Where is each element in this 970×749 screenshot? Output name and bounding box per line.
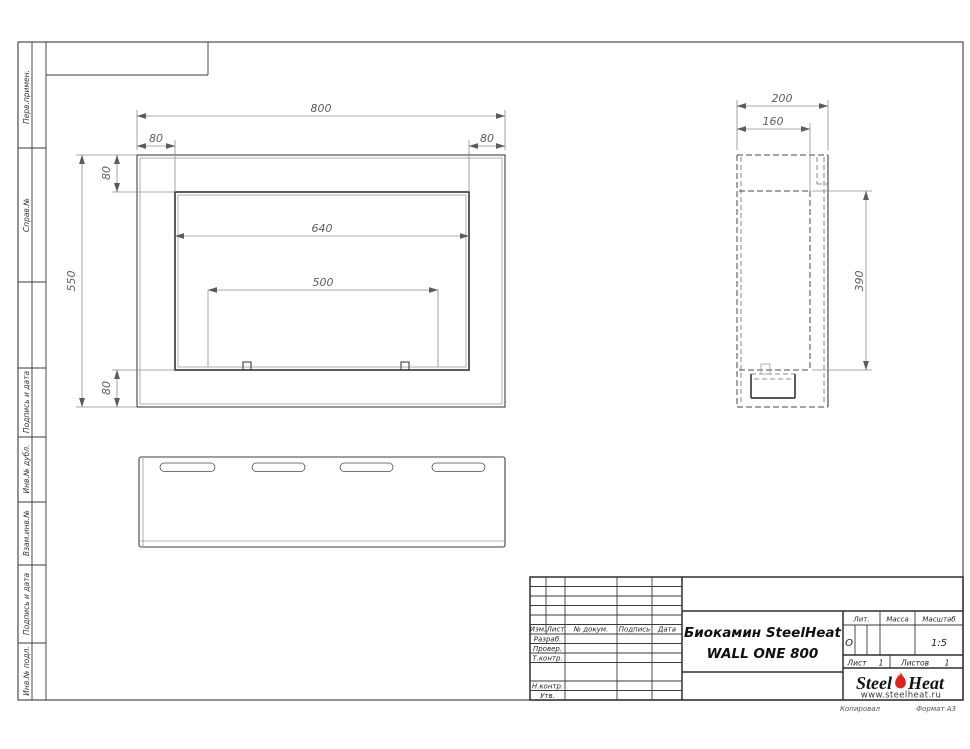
dim-front-80-left: 80 (149, 132, 163, 145)
tb-scale-value: 1:5 (931, 638, 947, 649)
stamp-podpis-data-1: Подпись и дата (22, 371, 31, 434)
tb-sheet-value: 1 (879, 659, 884, 668)
tb-sheet-label: Лист (846, 659, 867, 668)
tb-row-developed: Разраб. (534, 636, 562, 644)
dim-front-80-right: 80 (480, 132, 494, 145)
left-stamp-column: Перв.примен. Справ.№ Подпись и дата Инв.… (18, 42, 46, 700)
stamp-perv-primen: Перв.примен. (22, 70, 31, 124)
dim-front-800: 800 (311, 102, 332, 115)
side-burner-tab (761, 364, 770, 374)
tb-lit-value: О (845, 638, 853, 649)
tb-mass-label: Масса (886, 616, 908, 624)
vent-slot-4 (432, 463, 485, 472)
burner-tab-left (243, 362, 251, 370)
dim-front-80-bottom: 80 (100, 381, 113, 395)
stamp-podpis-data-2: Подпись и дата (22, 573, 31, 636)
bottom-view (139, 457, 505, 547)
dim-front-80-top: 80 (100, 166, 113, 180)
tb-col-izm: Изм. (530, 626, 546, 634)
steelheat-logo: Steel Heat www.steelheat.ru (856, 672, 945, 701)
tb-sheets-value: 1 (945, 659, 950, 668)
tb-row-ncontrol: Н.контр. (532, 683, 563, 691)
vent-slot-2 (252, 463, 305, 472)
top-left-stamp-box (46, 42, 208, 75)
dim-front-640: 640 (312, 222, 333, 235)
tb-col-sign: Подпись (619, 626, 651, 634)
front-view-dimensions: 800 80 80 80 550 80 640 500 (65, 102, 505, 407)
drawing-svg: Перв.примен. Справ.№ Подпись и дата Инв.… (0, 0, 970, 749)
tb-col-date: Дата (657, 626, 676, 634)
tb-col-doc: № докум. (573, 626, 609, 634)
flame-icon (895, 672, 906, 688)
vent-slot-1 (160, 463, 215, 472)
dim-front-500: 500 (313, 276, 334, 289)
stamp-inv-podl: Инв.№ подл. (22, 646, 31, 695)
dim-front-550: 550 (65, 271, 78, 292)
burner-tab-right (401, 362, 409, 370)
side-burner-tray (751, 364, 795, 398)
footer-notes: Копировал Формат А3 (840, 705, 956, 713)
tb-row-tcontrol: Т.контр. (532, 655, 562, 663)
tb-scale-label: Масштаб (922, 616, 956, 624)
stamp-sprav-no: Справ.№ (22, 198, 31, 232)
side-view (737, 155, 828, 407)
side-view-dimensions: 200 160 390 (737, 92, 872, 370)
document-title-line1: Биокамин SteelHeat (684, 625, 841, 641)
copied-label: Копировал (840, 705, 881, 713)
stamp-inv-dubl: Инв.№ дубл. (22, 445, 31, 494)
dim-side-390: 390 (853, 271, 866, 292)
vent-slot-3 (340, 463, 393, 472)
dim-side-200: 200 (772, 92, 793, 105)
logo-url: www.steelheat.ru (861, 691, 942, 701)
tb-col-list: Лист (546, 626, 566, 634)
format-label: Формат А3 (916, 705, 956, 713)
dim-side-160: 160 (763, 115, 784, 128)
stamp-vzam-inv: Взам.инв.№ (22, 510, 31, 556)
document-title-line2: WALL ONE 800 (707, 646, 819, 662)
drawing-sheet: Перв.примен. Справ.№ Подпись и дата Инв.… (0, 0, 970, 749)
tb-row-approved: Утв. (540, 692, 555, 700)
tb-sheets-label: Листов (900, 659, 929, 668)
tb-row-checked: Провер. (533, 645, 562, 653)
tb-lit-label: Лит. (852, 616, 869, 624)
